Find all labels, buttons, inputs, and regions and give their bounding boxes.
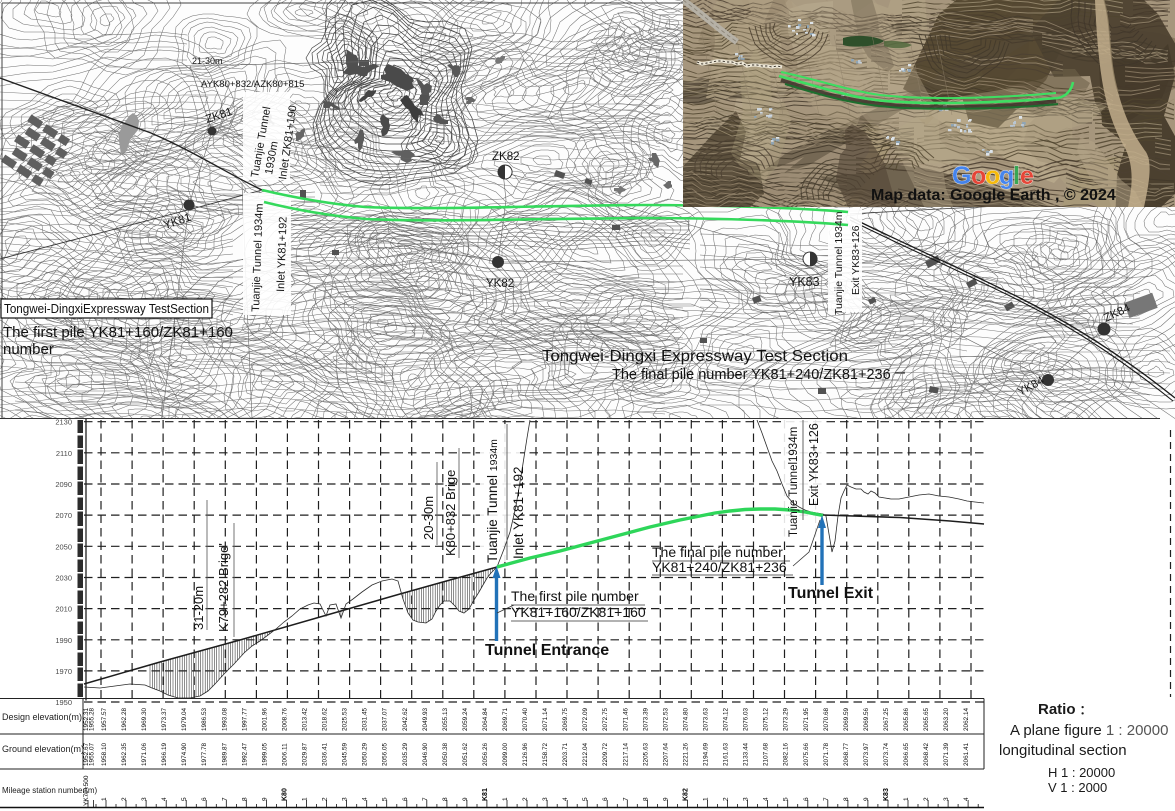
svg-text:K82: K82	[683, 788, 690, 801]
svg-text:YK82: YK82	[486, 278, 514, 290]
svg-text:o: o	[971, 162, 986, 190]
svg-text:1969.30: 1969.30	[141, 707, 148, 731]
svg-text:8: 8	[642, 797, 649, 801]
svg-text:1955.07: 1955.07	[89, 742, 96, 766]
svg-text:2056.05: 2056.05	[382, 742, 389, 766]
svg-text:2075.66: 2075.66	[803, 742, 810, 766]
svg-text:8: 8	[442, 797, 449, 801]
svg-text:number: number	[3, 341, 54, 358]
svg-text:g: g	[999, 162, 1014, 190]
svg-text:2194.69: 2194.69	[703, 742, 710, 766]
svg-text:6: 6	[201, 797, 208, 801]
svg-text:1986.53: 1986.53	[201, 707, 208, 731]
svg-text:2042.62: 2042.62	[402, 707, 409, 731]
svg-text:1955.28: 1955.28	[89, 707, 96, 731]
svg-text:2045.59: 2045.59	[342, 742, 349, 766]
svg-text:2068.77: 2068.77	[843, 742, 850, 766]
svg-text:e: e	[1020, 162, 1034, 190]
svg-text:31-20m: 31-20m	[191, 586, 206, 630]
svg-text:1: 1	[502, 797, 509, 801]
svg-text:7: 7	[422, 797, 429, 801]
svg-text:2: 2	[121, 797, 128, 801]
svg-text:2073.63: 2073.63	[703, 707, 710, 731]
svg-text:2055.13: 2055.13	[442, 707, 449, 731]
svg-text:3: 3	[542, 797, 549, 801]
svg-text:1977.78: 1977.78	[201, 742, 208, 766]
svg-text:9: 9	[863, 797, 870, 801]
svg-text:Inlet YK81+192: Inlet YK81+192	[511, 467, 526, 559]
svg-text:1997.77: 1997.77	[241, 707, 248, 731]
svg-text:20-30m: 20-30m	[421, 496, 436, 540]
svg-text:1962.28: 1962.28	[121, 707, 128, 731]
svg-text:3: 3	[141, 797, 148, 801]
svg-text:2207.64: 2207.64	[662, 742, 669, 766]
svg-text:2071.95: 2071.95	[803, 707, 810, 731]
svg-text:5: 5	[382, 797, 389, 801]
svg-text:The first pile number: The first pile number	[511, 588, 639, 604]
svg-text:3: 3	[342, 797, 349, 801]
svg-text:2018.62: 2018.62	[322, 707, 329, 731]
svg-text:2049.93: 2049.93	[422, 707, 429, 731]
svg-text:1962.35: 1962.35	[121, 742, 128, 766]
svg-text:2099.00: 2099.00	[502, 742, 509, 766]
svg-text:2008.76: 2008.76	[282, 707, 289, 731]
svg-text:Tunnel Entrance: Tunnel Entrance	[485, 642, 609, 659]
svg-text:K81: K81	[482, 788, 489, 801]
svg-text:2063.20: 2063.20	[943, 707, 950, 731]
svg-text:Tuanjie Tunnel 1934m: Tuanjie Tunnel 1934m	[833, 211, 845, 315]
svg-text:2070.68: 2070.68	[823, 707, 830, 731]
svg-text:2: 2	[522, 797, 529, 801]
svg-text:3: 3	[943, 797, 950, 801]
svg-text:9: 9	[261, 797, 268, 801]
svg-text:2090: 2090	[55, 480, 72, 489]
svg-text:Tuanjie Tunnel1934m: Tuanjie Tunnel1934m	[788, 427, 800, 537]
svg-text:ZK82: ZK82	[492, 151, 520, 163]
svg-text:2067.25: 2067.25	[883, 707, 890, 731]
svg-text:1: 1	[302, 797, 309, 801]
svg-text:2107.68: 2107.68	[763, 742, 770, 766]
svg-text:2161.63: 2161.63	[723, 742, 730, 766]
svg-text:YK81+160/ZK81+160: YK81+160/ZK81+160	[511, 604, 646, 620]
svg-text:6: 6	[402, 797, 409, 801]
svg-text:7: 7	[622, 797, 629, 801]
svg-text:2069.59: 2069.59	[843, 707, 850, 731]
svg-text:1970: 1970	[55, 667, 72, 676]
svg-text:G: G	[952, 162, 971, 190]
svg-text:Ground elevation(m): Ground elevation(m)	[2, 744, 84, 754]
svg-text:4: 4	[362, 797, 369, 801]
svg-text:2006.11: 2006.11	[282, 743, 289, 766]
svg-text:2037.07: 2037.07	[382, 707, 389, 731]
svg-text:2076.03: 2076.03	[743, 707, 750, 731]
svg-text:7: 7	[823, 797, 830, 801]
svg-text:1: 1	[903, 797, 910, 801]
svg-text:2217.14: 2217.14	[622, 742, 629, 766]
svg-text:2: 2	[723, 797, 730, 801]
svg-text:2069.75: 2069.75	[562, 707, 569, 731]
svg-text:1958.10: 1958.10	[101, 742, 108, 766]
svg-text:2050: 2050	[55, 542, 72, 551]
svg-text:K79+282 Brige': K79+282 Brige'	[216, 543, 231, 632]
svg-text:2072.09: 2072.09	[582, 707, 589, 731]
svg-text:A plane figure 1 : 20000: A plane figure 1 : 20000	[1010, 722, 1168, 739]
svg-text:9: 9	[662, 797, 669, 801]
svg-text:2065.86: 2065.86	[903, 707, 910, 731]
svg-text:H 1 : 20000: H 1 : 20000	[1048, 765, 1115, 780]
svg-text:2126.96: 2126.96	[522, 742, 529, 766]
svg-text:3: 3	[743, 797, 750, 801]
svg-text:AYK80+832/AZK80+815: AYK80+832/AZK80+815	[201, 79, 304, 90]
svg-text:2069.56: 2069.56	[863, 707, 870, 731]
svg-text:2062.14: 2062.14	[963, 707, 970, 731]
svg-text:Exit YK83+126: Exit YK83+126	[807, 423, 821, 506]
svg-text:2072.75: 2072.75	[602, 707, 609, 731]
svg-text:YK83: YK83	[789, 275, 820, 289]
svg-text:1974.90: 1974.90	[181, 742, 188, 766]
svg-text:2064.84: 2064.84	[482, 707, 489, 731]
svg-text:5: 5	[582, 797, 589, 801]
svg-text:4: 4	[161, 797, 168, 801]
svg-text:2072.53: 2072.53	[662, 707, 669, 731]
svg-text:Exit YK83+126: Exit YK83+126	[850, 225, 862, 295]
svg-text:longitudinal section: longitudinal section	[999, 742, 1127, 759]
svg-text:2073.29: 2073.29	[783, 707, 790, 731]
svg-text:2073.39: 2073.39	[642, 707, 649, 731]
svg-text:K80: K80	[282, 788, 289, 801]
svg-text:The final pile number YK81+240: The final pile number YK81+240/ZK81+236	[612, 367, 891, 383]
svg-text:Map data: Google Earth , © 202: Map data: Google Earth , © 2024	[871, 187, 1116, 204]
svg-text:2074.80: 2074.80	[683, 707, 690, 731]
svg-text:2075.12: 2075.12	[763, 707, 770, 731]
svg-text:K80+832 Brige: K80+832 Brige	[443, 470, 458, 556]
svg-text:2209.72: 2209.72	[602, 742, 609, 766]
svg-text:2071.39: 2071.39	[943, 742, 950, 766]
svg-text:l: l	[1013, 162, 1020, 190]
svg-text:2071.78: 2071.78	[823, 742, 830, 766]
svg-text:V 1 : 2000: V 1 : 2000	[1048, 780, 1107, 795]
svg-text:2158.72: 2158.72	[542, 742, 549, 766]
svg-text:2: 2	[923, 797, 930, 801]
svg-text:1971.06: 1971.06	[141, 742, 148, 766]
svg-text:9: 9	[462, 797, 469, 801]
svg-text:Tuanjie Tunnel 1934m: Tuanjie Tunnel 1934m	[485, 439, 500, 563]
svg-text:2013.42: 2013.42	[302, 707, 309, 731]
svg-text:2001.96: 2001.96	[261, 707, 268, 731]
svg-text:2010: 2010	[55, 605, 72, 614]
svg-text:2133.44: 2133.44	[743, 742, 750, 766]
svg-text:The final pile number: The final pile number	[652, 544, 783, 560]
svg-text:2025.53: 2025.53	[342, 707, 349, 731]
svg-text:1950: 1950	[55, 698, 72, 707]
svg-text:1989.87: 1989.87	[221, 742, 228, 766]
svg-text:1999.05: 1999.05	[261, 742, 268, 766]
svg-text:2070: 2070	[55, 511, 72, 520]
svg-text:2130: 2130	[55, 418, 72, 427]
svg-text:2212.04: 2212.04	[582, 742, 589, 766]
svg-text:2071.14: 2071.14	[542, 707, 549, 731]
svg-text:8: 8	[241, 797, 248, 801]
svg-text:1: 1	[703, 797, 710, 801]
svg-text:2036.41: 2036.41	[322, 742, 329, 766]
svg-text:8: 8	[843, 797, 850, 801]
svg-text:2059.24: 2059.24	[462, 707, 469, 731]
svg-text:5: 5	[181, 797, 188, 801]
svg-text:2221.26: 2221.26	[683, 742, 690, 766]
svg-text:1993.08: 1993.08	[221, 707, 228, 731]
svg-text:2029.87: 2029.87	[302, 742, 309, 766]
svg-text:The first pile YK81+160/ZK81+1: The first pile YK81+160/ZK81+160	[3, 324, 233, 341]
svg-text:2051.62: 2051.62	[462, 742, 469, 766]
svg-text:2031.45: 2031.45	[362, 707, 369, 731]
svg-text:5: 5	[783, 797, 790, 801]
svg-text:1990: 1990	[55, 636, 72, 645]
svg-text:7: 7	[221, 797, 228, 801]
svg-text:Tongwei-Dingxi Expressway Test: Tongwei-Dingxi Expressway Test Section	[542, 348, 848, 365]
svg-text:2050.38: 2050.38	[442, 742, 449, 766]
svg-text:2068.42: 2068.42	[923, 742, 930, 766]
svg-text:1957.57: 1957.57	[101, 707, 108, 731]
svg-text:2046.90: 2046.90	[422, 742, 429, 766]
svg-text:2073.97: 2073.97	[863, 742, 870, 766]
svg-text:6: 6	[803, 797, 810, 801]
svg-text:K83: K83	[883, 788, 890, 801]
svg-text:2050.29: 2050.29	[362, 742, 369, 766]
svg-text:4: 4	[562, 797, 569, 801]
svg-text:1992.47: 1992.47	[241, 742, 248, 766]
svg-text:4: 4	[963, 797, 970, 801]
svg-text:2074.12: 2074.12	[723, 707, 730, 731]
svg-text:2205.63: 2205.63	[642, 742, 649, 766]
svg-text:21-30m: 21-30m	[192, 56, 223, 66]
svg-text:Design elevation(m): Design elevation(m)	[2, 712, 82, 722]
svg-text:6: 6	[602, 797, 609, 801]
svg-text:2066.65: 2066.65	[903, 742, 910, 766]
svg-text:2073.74: 2073.74	[883, 742, 890, 766]
svg-text:2035.29: 2035.29	[402, 742, 409, 766]
svg-text:2070.40: 2070.40	[522, 707, 529, 731]
svg-text:2071.46: 2071.46	[622, 707, 629, 731]
svg-text:2203.71: 2203.71	[562, 742, 569, 766]
svg-text:2065.65: 2065.65	[923, 707, 930, 731]
svg-text:Ratio ：: Ratio ：	[1038, 701, 1092, 718]
svg-text:2056.26: 2056.26	[482, 742, 489, 766]
svg-text:2: 2	[322, 797, 329, 801]
svg-text:Tongwei-DingxiExpressway TestS: Tongwei-DingxiExpressway TestSection	[4, 302, 209, 316]
svg-text:2030: 2030	[55, 574, 72, 583]
svg-text:1966.19: 1966.19	[161, 742, 168, 766]
svg-text:2069.71: 2069.71	[502, 707, 509, 731]
svg-text:YK79+500: YK79+500	[83, 775, 90, 806]
svg-text:2110: 2110	[56, 449, 72, 458]
svg-text:2082.16: 2082.16	[783, 742, 790, 766]
svg-text:o: o	[985, 162, 1000, 190]
svg-text:1: 1	[101, 797, 108, 801]
svg-text:2061.41: 2061.41	[963, 742, 970, 766]
svg-text:Tunnel Exit: Tunnel Exit	[788, 585, 874, 602]
svg-text:1979.04: 1979.04	[181, 707, 188, 731]
svg-text:1973.37: 1973.37	[161, 707, 168, 731]
svg-text:4: 4	[763, 797, 770, 801]
